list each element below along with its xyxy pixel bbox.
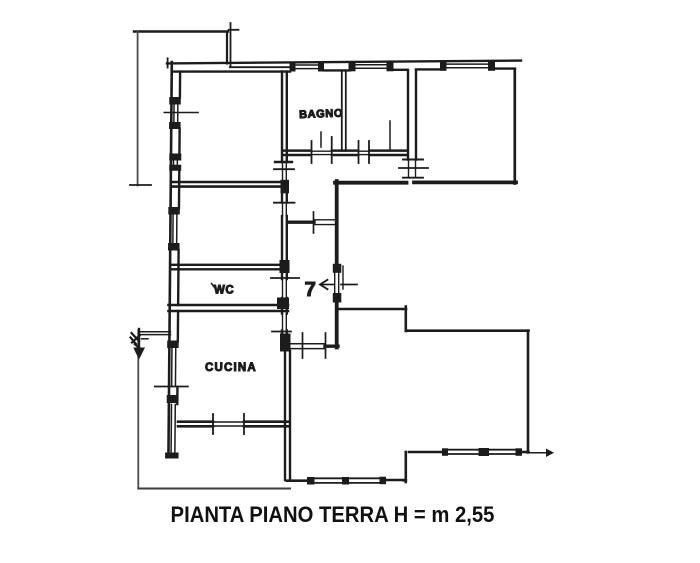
svg-text:CUCINA: CUCINA [205, 362, 257, 374]
svg-text:BAGNO: BAGNO [299, 108, 343, 122]
svg-text:7: 7 [305, 278, 316, 301]
